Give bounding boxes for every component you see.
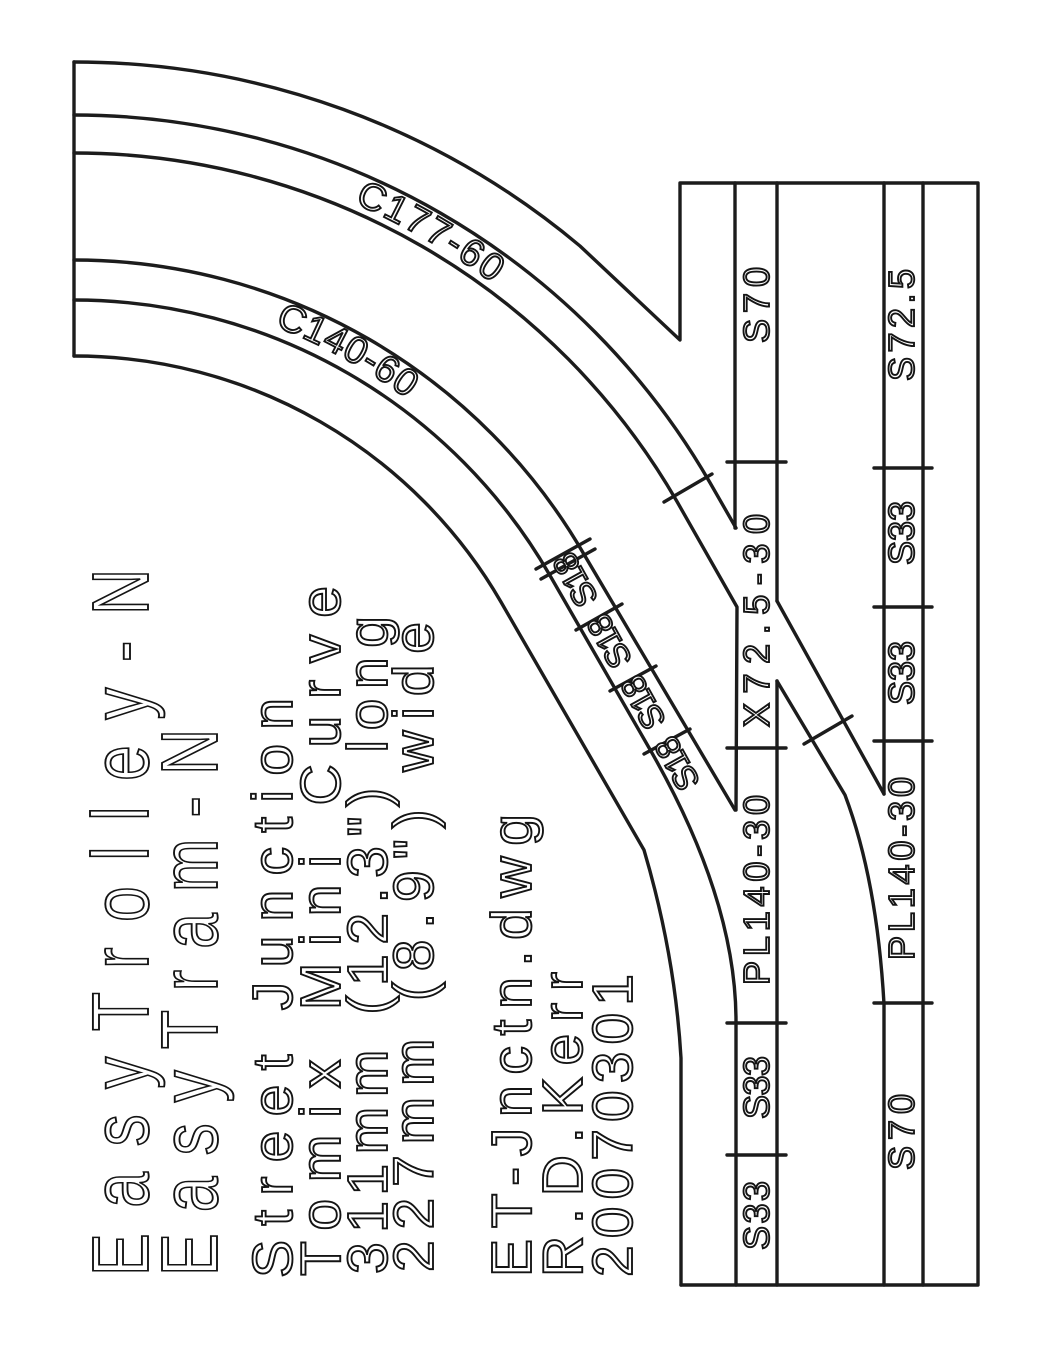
- svg-text:227mm (8.9") wide: 227mm (8.9") wide: [382, 622, 446, 1272]
- svg-text:PL140-30: PL140-30: [881, 777, 922, 960]
- svg-text:S33: S33: [736, 1056, 777, 1119]
- svg-text:PL140-30: PL140-30: [736, 795, 777, 985]
- svg-text:S70: S70: [736, 267, 777, 343]
- svg-text:S70: S70: [881, 1094, 922, 1170]
- svg-text:S72.5: S72.5: [881, 269, 922, 381]
- svg-text:S33: S33: [881, 641, 922, 705]
- svg-text:S33: S33: [881, 501, 922, 565]
- svg-text:S33: S33: [736, 1181, 777, 1250]
